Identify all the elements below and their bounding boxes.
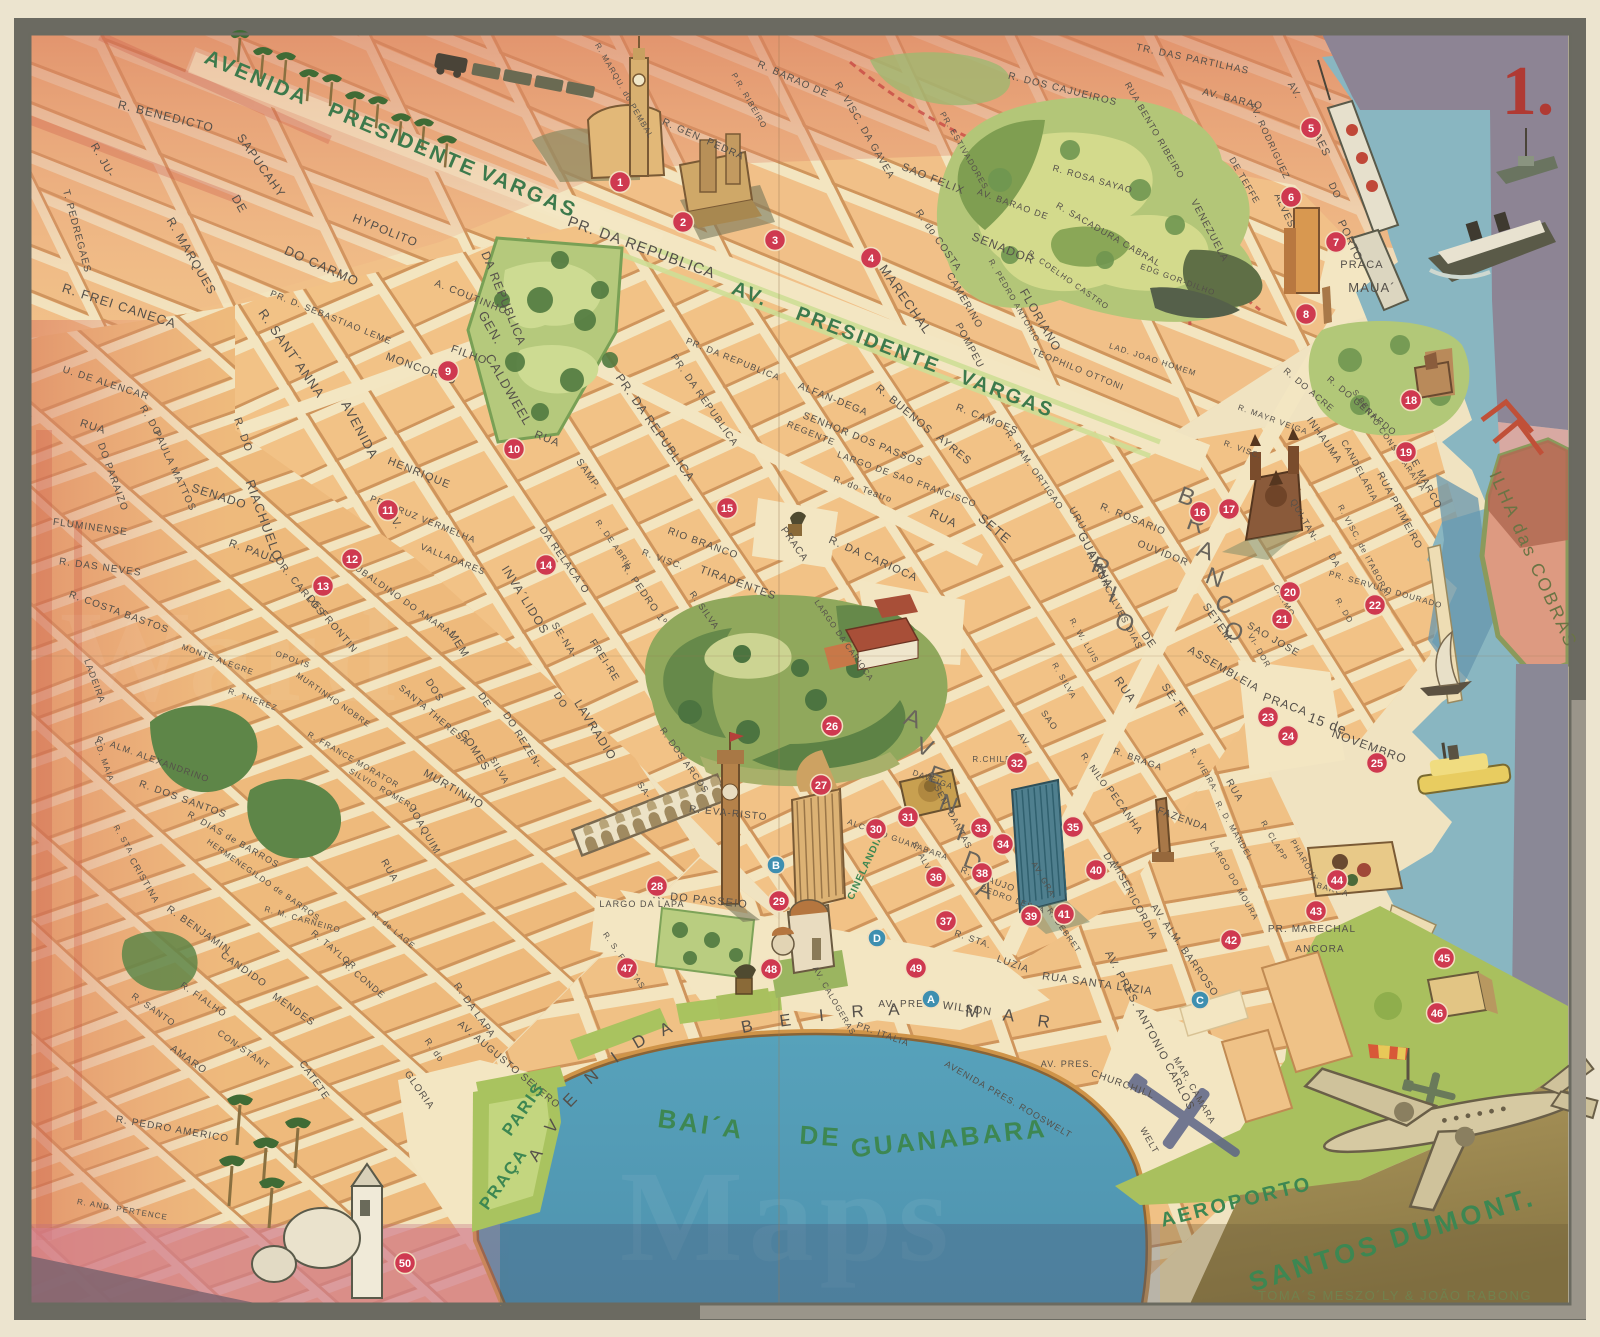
- svg-text:24: 24: [1282, 731, 1295, 743]
- svg-text:31: 31: [902, 812, 914, 824]
- svg-text:19: 19: [1400, 447, 1412, 459]
- svg-text:7: 7: [1333, 237, 1339, 249]
- svg-text:23: 23: [1262, 712, 1274, 724]
- svg-text:33: 33: [975, 823, 987, 835]
- svg-text:8: 8: [1303, 309, 1309, 321]
- svg-text:1: 1: [617, 177, 623, 189]
- svg-text:29: 29: [773, 896, 785, 908]
- svg-text:38: 38: [976, 868, 988, 880]
- svg-text:A: A: [888, 1000, 901, 1019]
- svg-text:D: D: [873, 933, 881, 945]
- svg-text:26: 26: [826, 721, 838, 733]
- svg-text:18: 18: [1405, 395, 1417, 407]
- svg-text:35: 35: [1067, 822, 1079, 834]
- svg-text:16: 16: [1194, 507, 1206, 519]
- svg-text:42: 42: [1225, 935, 1237, 947]
- svg-text:PR. MARECHAL: PR. MARECHAL: [1268, 924, 1356, 935]
- svg-text:32: 32: [1011, 758, 1023, 770]
- svg-text:43: 43: [1310, 906, 1322, 918]
- svg-text:22: 22: [1369, 600, 1381, 612]
- svg-text:15: 15: [721, 503, 733, 515]
- svg-text:41: 41: [1058, 909, 1070, 921]
- svg-text:50: 50: [399, 1258, 411, 1270]
- svg-text:14: 14: [540, 560, 553, 572]
- svg-text:46: 46: [1431, 1008, 1443, 1020]
- svg-text:45: 45: [1438, 953, 1450, 965]
- svg-text:36: 36: [930, 872, 942, 884]
- svg-text:49: 49: [910, 963, 922, 975]
- svg-text:30: 30: [870, 824, 882, 836]
- svg-text:LARGO DA LAPA: LARGO DA LAPA: [599, 899, 684, 909]
- svg-text:DE: DE: [799, 1120, 843, 1153]
- svg-text:39: 39: [1025, 911, 1037, 923]
- svg-text:48: 48: [765, 964, 777, 976]
- svg-text:TOMA´S MESZO´LY & JOÃO RABONG: TOMA´S MESZO´LY & JOÃO RABONG: [1258, 1288, 1532, 1303]
- svg-text:PRACA: PRACA: [1340, 259, 1383, 271]
- svg-text:2: 2: [680, 217, 686, 229]
- svg-text:AV. PRES.: AV. PRES.: [1041, 1059, 1093, 1069]
- svg-text:5: 5: [1308, 123, 1314, 135]
- svg-text:11: 11: [382, 505, 394, 517]
- svg-text:20: 20: [1284, 587, 1296, 599]
- svg-text:17: 17: [1223, 504, 1235, 516]
- svg-text:C: C: [1196, 995, 1204, 1007]
- svg-text:27: 27: [815, 780, 827, 792]
- svg-text:9: 9: [445, 366, 451, 378]
- svg-text:ANCORA: ANCORA: [1295, 944, 1344, 955]
- svg-text:47: 47: [621, 963, 633, 975]
- svg-text:12: 12: [346, 554, 358, 566]
- svg-text:R: R: [1036, 1011, 1051, 1032]
- svg-text:40: 40: [1090, 865, 1102, 877]
- svg-text:A: A: [927, 994, 935, 1006]
- svg-text:B: B: [772, 860, 780, 872]
- svg-text:13: 13: [317, 581, 329, 593]
- svg-text:44: 44: [1331, 875, 1344, 887]
- svg-text:R.CHILE: R.CHILE: [972, 755, 1011, 764]
- svg-text:28: 28: [651, 881, 663, 893]
- svg-text:R: R: [851, 1002, 865, 1022]
- svg-text:34: 34: [997, 839, 1010, 851]
- svg-text:37: 37: [940, 916, 952, 928]
- svg-text:M: M: [965, 1002, 980, 1022]
- svg-text:6: 6: [1288, 192, 1294, 204]
- svg-text:1.: 1.: [1502, 53, 1555, 130]
- svg-text:25: 25: [1371, 758, 1383, 770]
- svg-text:10: 10: [508, 444, 520, 456]
- svg-text:4: 4: [868, 253, 875, 265]
- svg-text:3: 3: [772, 235, 778, 247]
- svg-text:MAUA´: MAUA´: [1348, 280, 1395, 295]
- svg-text:21: 21: [1276, 614, 1288, 626]
